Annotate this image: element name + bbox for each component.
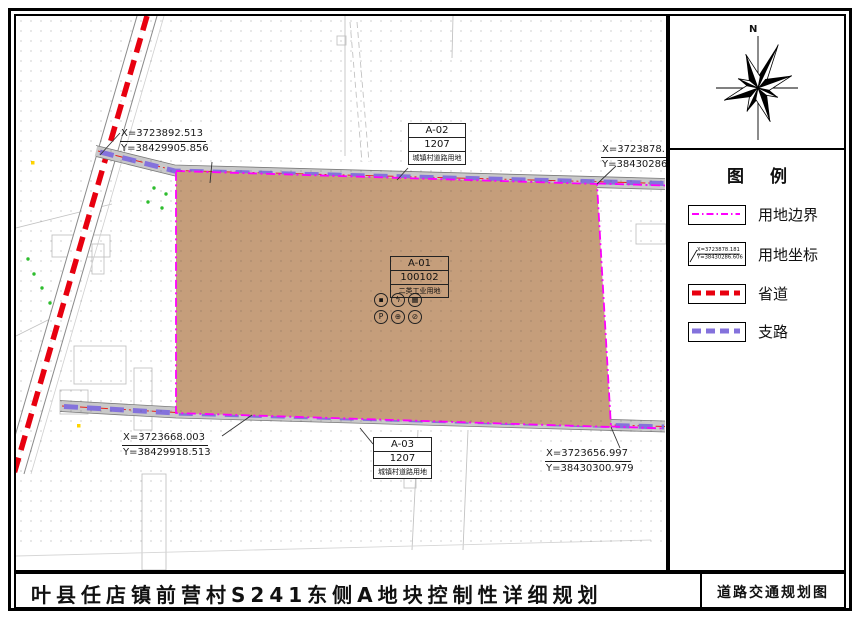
coordinate-y: Y=38430300.979 [545,462,635,475]
north-arrow-box: N [670,16,844,150]
north-label: N [749,24,757,35]
coordinate-y: Y=38429905.856 [120,142,210,155]
provincial-road-line-icon [688,284,746,304]
title-bar: 叶县任店镇前营村S241东侧A地块控制性详细规划 道路交通规划图 [14,572,846,609]
drawing-name: 道路交通规划图 [702,582,844,602]
parcel-use-code: 1207 [374,451,431,465]
boundary-line-icon [688,205,746,225]
coordinate-y: Y=38429918.513 [122,446,212,459]
parcel-use-name: 城镇村道路用地 [409,151,465,164]
coordinate-x: X=3723656.997 [545,448,631,462]
branch-road-line-icon [688,322,746,342]
parcel-label-a01: A-01 100102 二类工业用地 [390,256,449,298]
coordinate-label-bottom-left: X=3723668.003 Y=38429918.513 [122,432,212,459]
parcel-use-name: 城镇村道路用地 [374,465,431,478]
parking-icon: P [374,310,388,324]
legend-item-coordinate: X=3723878.181 Y=38430286.606 用地坐标 [688,242,844,266]
sample-x: X=3723878.181 [697,247,740,254]
legend-title: 图 例 [670,162,844,187]
parcel-use-code: 1207 [409,137,465,151]
coordinate-label-top-right: X=3723878.181 Y=38430286.606 [601,144,668,171]
coordinate-x: X=3723892.513 [120,128,206,142]
coordinate-sample-icon: X=3723878.181 Y=38430286.606 [688,242,746,266]
parcel-use-code: 100102 [391,270,448,284]
legend-label: 省道 [758,283,788,304]
legend-item-provincial-road: 省道 [688,283,844,304]
legend-label: 用地坐标 [758,244,818,265]
waste-facility-icon: ▪ [374,293,388,307]
coordinate-x: X=3723878.181 [601,144,668,158]
parcel-code: A-01 [391,257,448,270]
map-drawing [16,16,666,570]
facility-icon-6: ⊘ [408,310,422,324]
coordinate-label-bottom-right: X=3723656.997 Y=38430300.979 [545,448,635,475]
coordinate-label-top-left: X=3723892.513 Y=38429905.856 [120,128,210,155]
parcel-label-a02: A-02 1207 城镇村道路用地 [408,123,466,165]
coordinate-x: X=3723668.003 [122,432,208,446]
legend-label: 支路 [758,321,788,342]
parcel-label-a03: A-03 1207 城镇村道路用地 [373,437,432,479]
compass-rose-icon [670,16,844,148]
parcel-code: A-03 [374,438,431,451]
map-area: X=3723892.513 Y=38429905.856 X=3723878.1… [14,14,668,572]
side-panel: N [668,14,846,572]
toilet-facility-icon: ▦ [408,293,422,307]
sample-y: Y=38430286.606 [697,254,743,260]
legend-label: 用地边界 [758,204,818,225]
facility-icon-group: ▪ ϟ ▦ P ⊕ ⊘ [374,293,422,324]
power-facility-icon: ϟ [391,293,405,307]
facility-icon-5: ⊕ [391,310,405,324]
legend-item-boundary: 用地边界 [688,204,844,225]
legend-item-branch-road: 支路 [688,321,844,342]
coordinate-y: Y=38430286.606 [601,158,668,171]
parcel-code: A-02 [409,124,465,137]
plan-title: 叶县任店镇前营村S241东侧A地块控制性详细规划 [31,579,603,608]
